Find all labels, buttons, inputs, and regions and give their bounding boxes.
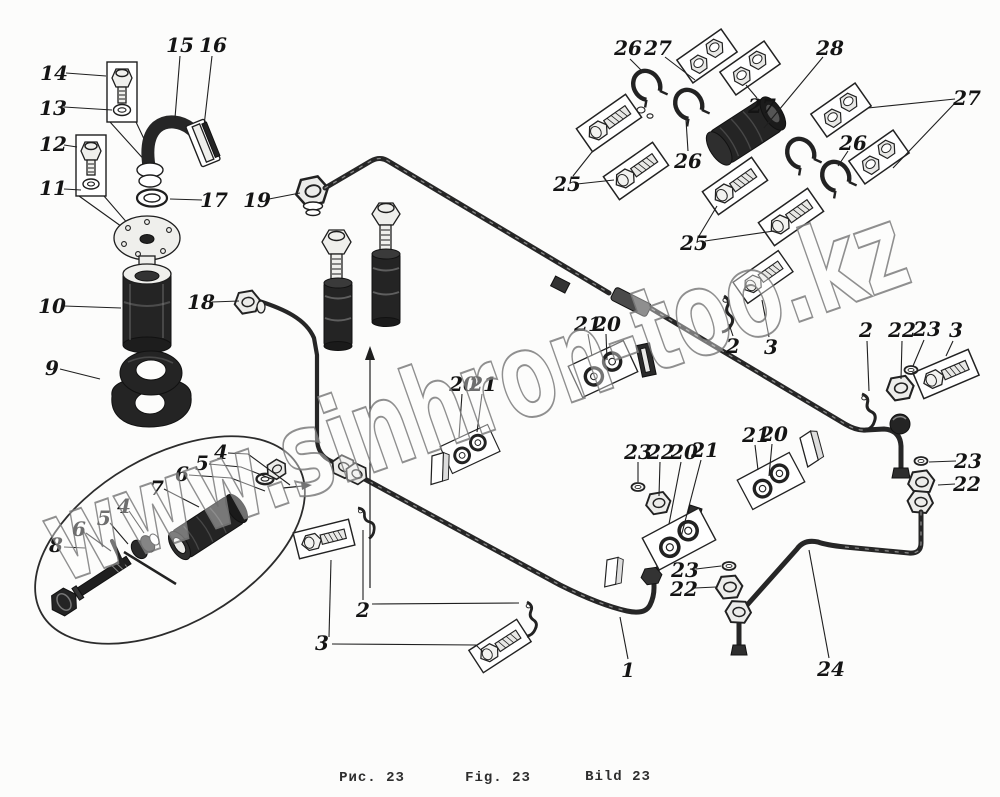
callout-22: 22 bbox=[669, 577, 698, 601]
flange-plate bbox=[114, 216, 180, 270]
leader-line-16 bbox=[204, 56, 212, 126]
nut-box-27-3 bbox=[811, 83, 871, 137]
clip-2-center bbox=[358, 505, 377, 539]
leader-line-22 bbox=[695, 587, 716, 588]
leader-line-15 bbox=[175, 56, 180, 118]
leader-line-1 bbox=[620, 617, 628, 659]
callout-15: 15 bbox=[166, 33, 194, 57]
leader-line-22 bbox=[901, 341, 902, 379]
callout-23: 23 bbox=[953, 449, 982, 473]
leader-line-14 bbox=[66, 73, 106, 76]
callout-25: 25 bbox=[552, 172, 581, 196]
callout-23: 23 bbox=[912, 317, 941, 341]
callout-22: 22 bbox=[952, 472, 981, 496]
callout-21: 21 bbox=[690, 438, 719, 462]
clip-2-bottom bbox=[524, 602, 539, 637]
fuel-pipe-24 bbox=[715, 512, 921, 655]
leader-line-3 bbox=[332, 644, 483, 652]
callout-3: 3 bbox=[949, 318, 963, 342]
gasket-9 bbox=[112, 351, 191, 427]
hardware-box-12-11 bbox=[76, 135, 129, 229]
leader-line-23 bbox=[913, 340, 924, 366]
exploded-parts-diagram: 1413121115161719109184567456823124202121… bbox=[0, 0, 1000, 797]
callout-16: 16 bbox=[199, 33, 227, 57]
leader-line-22 bbox=[659, 462, 660, 496]
callout-13: 13 bbox=[39, 96, 67, 120]
callout-3: 3 bbox=[315, 631, 329, 655]
ring-23-right-upper bbox=[905, 366, 918, 374]
callout-24: 24 bbox=[816, 657, 845, 681]
hose-clamp-26-3 bbox=[782, 134, 822, 176]
callout-10: 10 bbox=[38, 294, 66, 318]
hose-clamp-26-2 bbox=[670, 85, 710, 127]
caption-en: Fig. 23 bbox=[465, 770, 531, 786]
callout-27: 27 bbox=[747, 94, 776, 118]
leader-line-20 bbox=[669, 462, 681, 524]
sealing-ring-17 bbox=[137, 190, 167, 207]
callout-18: 18 bbox=[187, 290, 215, 314]
hollow-bolt-right bbox=[372, 203, 400, 327]
clamp-plate-21-20-right bbox=[737, 453, 805, 510]
callout-27: 27 bbox=[643, 36, 672, 60]
parts-diagram-page: 1413121115161719109184567456823124202121… bbox=[0, 0, 1000, 797]
leader-line-2 bbox=[372, 603, 519, 604]
leader-line-3 bbox=[329, 560, 331, 637]
filter-element-10 bbox=[123, 264, 171, 353]
callout-20: 20 bbox=[759, 422, 788, 446]
leader-line-24 bbox=[809, 550, 829, 658]
callout-17: 17 bbox=[200, 188, 228, 212]
bolt-box-25-2 bbox=[603, 142, 668, 199]
callout-11: 11 bbox=[39, 176, 67, 200]
callout-12: 12 bbox=[39, 132, 67, 156]
leader-line-21 bbox=[755, 445, 758, 470]
bolt-box-25-3 bbox=[702, 157, 767, 214]
callout-22: 22 bbox=[887, 318, 916, 342]
callout-27: 27 bbox=[952, 86, 981, 110]
banjo-fitting-19 bbox=[294, 175, 331, 216]
leader-line-10 bbox=[64, 306, 121, 308]
caption-de: Bild 23 bbox=[585, 769, 651, 785]
leader-line-27 bbox=[868, 99, 955, 108]
leader-line-23 bbox=[929, 461, 956, 462]
leader-line-9 bbox=[60, 369, 100, 379]
leader-line-2 bbox=[867, 341, 869, 391]
bracket-channel-right bbox=[799, 429, 825, 467]
callout-26: 26 bbox=[673, 149, 702, 173]
bolt-box-25-1 bbox=[576, 94, 641, 151]
caption-ru: Рис. 23 bbox=[339, 770, 405, 786]
leader-line-3 bbox=[946, 341, 953, 356]
callout-2: 2 bbox=[355, 598, 370, 622]
callout-19: 19 bbox=[243, 188, 271, 212]
leader-line-26 bbox=[630, 59, 641, 70]
hollow-bolt-left bbox=[322, 230, 352, 351]
pipe-joint-fittings-right bbox=[907, 457, 936, 514]
callout-1: 1 bbox=[621, 658, 635, 682]
flange-16 bbox=[185, 118, 221, 167]
callout-14: 14 bbox=[40, 61, 68, 85]
hose-28 bbox=[701, 93, 790, 170]
callout-26: 26 bbox=[838, 131, 867, 155]
callout-28: 28 bbox=[815, 36, 844, 60]
bolt-box-3-right bbox=[913, 349, 979, 398]
bracket-channel-low bbox=[605, 556, 624, 588]
callout-9: 9 bbox=[45, 356, 59, 380]
leader-line-27 bbox=[893, 103, 955, 168]
leader-line-19 bbox=[269, 193, 300, 199]
leader-line-17 bbox=[170, 199, 202, 200]
nut-22-right-upper bbox=[885, 375, 916, 402]
callout-26: 26 bbox=[613, 36, 642, 60]
hose-clamp-26-1 bbox=[628, 66, 668, 108]
leader-line-23 bbox=[696, 566, 721, 569]
leader-line-13 bbox=[64, 107, 112, 110]
clip-2-right bbox=[862, 393, 876, 430]
bolt-box-3-bottom bbox=[469, 619, 531, 672]
